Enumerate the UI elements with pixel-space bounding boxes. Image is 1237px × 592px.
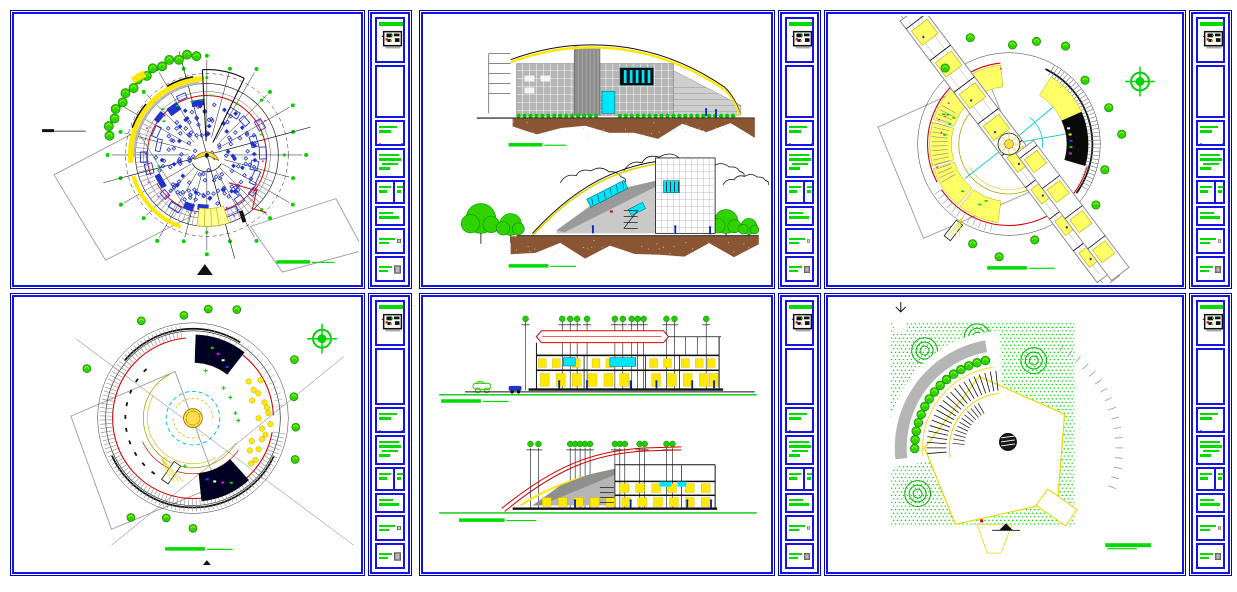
rect-glyph [604, 373, 613, 386]
drawing-label-bar [459, 518, 505, 521]
illegible-text-bar [1200, 503, 1220, 506]
hatch-tick [106, 449, 117, 453]
titleblock-notes-box [785, 435, 814, 465]
tree-symbol [995, 253, 1003, 261]
tree-symbol [158, 62, 167, 71]
stamp-text [1200, 236, 1216, 247]
hatch-tick [1088, 132, 1100, 134]
seat-marker [230, 189, 234, 193]
illegible-text-bar [789, 499, 803, 502]
tree-symbol [204, 305, 212, 313]
notes2-text [789, 499, 810, 506]
hatch-tick [264, 370, 271, 374]
rect-glyph [603, 129, 604, 130]
illegible-text-bar [789, 126, 807, 129]
hatch-tick [182, 209, 187, 222]
seat-marker [178, 125, 182, 129]
titleblock-sheet-number-box [785, 467, 814, 491]
tree-symbol [1061, 42, 1069, 50]
rect-glyph [217, 353, 220, 355]
stamp-text [1200, 523, 1216, 534]
sheet-4-drawing-area[interactable] [10, 293, 365, 576]
hatch-tick [271, 443, 282, 447]
illegible-text-bar [379, 216, 399, 219]
hatch-tick [1084, 113, 1095, 117]
rect-glyph [588, 373, 597, 386]
magenta-dot [164, 115, 166, 117]
sheet-6-drawing-area[interactable] [824, 293, 1186, 576]
magenta-dot [264, 120, 266, 122]
seat-marker [203, 178, 207, 182]
north-symbol-icon [1218, 235, 1221, 247]
tree-symbol [920, 402, 929, 411]
tree-symbol [165, 55, 174, 64]
rect-glyph [615, 495, 715, 496]
grid-bubble [205, 54, 209, 58]
grid-bubble [119, 130, 123, 134]
project-title-bar [379, 22, 405, 26]
illegible-text-bar [789, 477, 797, 480]
cad-sheet-layout [0, 0, 1237, 592]
rect-glyph [126, 402, 129, 406]
hatch-tick [100, 423, 112, 424]
seat-marker [167, 148, 171, 152]
ring-room-sector [930, 122, 954, 166]
hatch-tick [1113, 427, 1121, 428]
shrub [695, 114, 699, 118]
seal-text [379, 264, 392, 275]
rect-glyph [528, 246, 529, 247]
rect-glyph [641, 246, 642, 247]
room-fill [681, 359, 689, 368]
rect-glyph [591, 247, 592, 248]
rect-glyph [643, 134, 644, 135]
scale-notes [379, 126, 401, 133]
terrace-planter [264, 405, 270, 411]
seat-marker [172, 162, 176, 166]
circle-glyph [260, 99, 263, 102]
rect-glyph [610, 211, 613, 213]
rect-glyph [587, 248, 588, 249]
sheet-5-drawing-area[interactable] [419, 293, 775, 576]
drawing-label-bar [207, 549, 233, 550]
seat-marker [207, 124, 211, 128]
rect-glyph [624, 70, 627, 83]
hatch-tick [984, 222, 986, 230]
hatch-tick [1086, 120, 1098, 123]
illegible-text-bar [379, 212, 393, 215]
floor-slab [536, 369, 719, 371]
titleblock-seal-box [375, 256, 405, 282]
illegible-text-bar [789, 186, 801, 189]
rect-glyph [622, 498, 631, 507]
drawing-label-bar [550, 266, 576, 267]
hatch-tick [160, 331, 164, 342]
circular-roof-plan[interactable] [16, 299, 359, 570]
seat-marker [197, 123, 201, 127]
titleblock-stack [785, 17, 814, 282]
tree-symbol [1118, 130, 1126, 138]
rect-glyph [743, 133, 744, 134]
rect-glyph [125, 428, 127, 432]
line-glyph [213, 78, 244, 142]
hatch-tick [1085, 117, 1096, 121]
rect-glyph [540, 76, 550, 82]
rect-glyph [583, 247, 584, 248]
rect-glyph [226, 366, 229, 368]
building-elevations[interactable] [425, 16, 769, 283]
hatch-tick [108, 452, 119, 457]
shrub [570, 114, 574, 118]
tree-symbol [291, 455, 299, 463]
illegible-text-bar [1200, 454, 1211, 457]
circle-glyph [944, 115, 946, 117]
illegible-text-bar [379, 266, 392, 269]
rect-glyph [525, 87, 535, 93]
shrub [576, 114, 580, 118]
hatch-tick [141, 176, 154, 181]
room-fill [592, 359, 600, 368]
tree-symbol [1008, 41, 1016, 49]
grid-spoke [216, 72, 255, 139]
rect-glyph [985, 200, 988, 202]
ring-room [259, 147, 266, 159]
titleblock-notes2-box [1196, 206, 1225, 226]
notes2-text [379, 499, 401, 506]
car-blue [509, 386, 522, 391]
column-top [703, 316, 709, 322]
seat-marker [232, 164, 236, 168]
rect-glyph [701, 498, 710, 507]
rect-glyph [260, 134, 263, 136]
illegible-text-bar [789, 242, 799, 245]
room-fill [664, 359, 672, 368]
circular-floor-plan-level-1[interactable] [16, 16, 359, 283]
earth-hatch [513, 118, 755, 139]
illegible-text-bar [807, 477, 811, 480]
rect-glyph [652, 484, 661, 493]
notes-text [789, 441, 810, 457]
column-top [620, 316, 626, 322]
circle-glyph [1000, 68, 1002, 70]
rect-glyph [642, 70, 645, 83]
titleblock-empty-panel [785, 65, 814, 118]
sheet-name-cell [1198, 469, 1216, 489]
hatch-tick [104, 391, 115, 394]
rect-glyph [728, 242, 729, 243]
titleblock-notes2-box [1196, 493, 1225, 513]
illegible-text-bar [1200, 441, 1220, 444]
rect-glyph [709, 247, 710, 248]
hatch-tick [939, 194, 945, 199]
sheet-1-drawing-area[interactable] [10, 10, 365, 289]
sheet-number-cell [395, 469, 405, 489]
illegible-text-bar [379, 477, 387, 480]
seat-marker [223, 108, 227, 112]
tree-cluster [1021, 348, 1047, 374]
circle-glyph [592, 225, 594, 227]
shrub [701, 114, 705, 118]
person-figure [630, 382, 632, 388]
hatch-tick [1088, 151, 1100, 152]
rect-glyph [606, 498, 615, 507]
scale-notes [1200, 413, 1221, 420]
illegible-text-bar [379, 167, 390, 170]
seal-swatch [394, 262, 401, 277]
grid-bubble [291, 176, 295, 180]
hatch-tick [1089, 371, 1095, 376]
illegible-text-bar [1218, 186, 1225, 189]
rect-glyph [685, 242, 686, 243]
hatch-tick [167, 496, 170, 508]
rect-glyph [667, 373, 676, 386]
rect-glyph [239, 210, 246, 223]
tree-symbol [1032, 37, 1040, 45]
rect-glyph [636, 484, 645, 493]
seat-marker [226, 120, 230, 124]
rect-glyph [1069, 140, 1072, 142]
sheet-name-cell [1198, 182, 1216, 202]
hatch-tick [1111, 417, 1119, 419]
rect-glyph [602, 132, 603, 133]
titleblock-seal-box [375, 543, 405, 569]
seat-marker [167, 134, 171, 138]
glass-door [602, 91, 615, 113]
shrub [534, 114, 538, 118]
person-figure [574, 502, 576, 508]
terrace-planter [249, 438, 255, 444]
illegible-text-bar [789, 473, 801, 476]
shrub [725, 114, 729, 118]
circle-glyph [709, 226, 711, 228]
titleblock-stack [375, 17, 405, 282]
rect-glyph [200, 99, 203, 101]
hatch-tick [268, 450, 279, 455]
seat-marker [246, 149, 250, 153]
terrace-planter [268, 421, 274, 427]
shrub [636, 114, 640, 118]
seal-text [1200, 264, 1213, 275]
circle-glyph [558, 380, 560, 382]
sheet-name-cell [787, 182, 805, 202]
key-plan-thumbnail [789, 28, 814, 54]
illegible-text-bar [789, 454, 800, 457]
terrace-planter [259, 436, 265, 442]
titleblock-sheet-number-box [375, 467, 405, 491]
illegible-text-bar [379, 441, 399, 444]
hatch-tick [973, 218, 976, 225]
person-figure [630, 502, 632, 508]
terrace-planter [246, 379, 252, 385]
illegible-text-bar [789, 266, 802, 269]
graphic-scale-bar [1200, 429, 1224, 433]
tree-symbol [111, 104, 120, 113]
tree-symbol [966, 34, 974, 42]
notes-text [789, 154, 810, 170]
circle-glyph [642, 441, 648, 447]
rect-glyph [221, 482, 224, 484]
shrub [689, 114, 693, 118]
seat-marker [239, 180, 243, 184]
pool [610, 358, 636, 367]
person-figure [713, 382, 715, 388]
seal-text [789, 264, 802, 275]
circular-floor-plan-level-2[interactable] [830, 16, 1180, 283]
terrace-planter [266, 410, 272, 416]
seat-marker [234, 131, 238, 135]
illegible-text-bar [1200, 242, 1210, 245]
hatch-tick [163, 330, 167, 341]
circle-glyph [664, 441, 670, 447]
sheet-3-drawing-area[interactable] [824, 10, 1186, 289]
rect-glyph [516, 249, 517, 250]
sheet-2-drawing-area[interactable] [419, 10, 775, 289]
titleblock-empty-panel [375, 65, 405, 118]
titleblock-sheet-number-box [1196, 180, 1225, 204]
circle-glyph [710, 499, 712, 501]
graphic-scale-bar [379, 142, 403, 146]
building-sections[interactable] [425, 299, 769, 570]
site-axis [112, 357, 344, 546]
titleblock-sheet-number-box [375, 180, 405, 204]
titleblock-scale-box [785, 407, 814, 433]
rect-glyph [602, 247, 603, 248]
circle-glyph [512, 223, 524, 235]
hatch-tick [269, 446, 280, 450]
drawing-label-bar [1107, 548, 1137, 549]
key-plan-thumbnail [789, 311, 814, 337]
rect-glyph [533, 132, 534, 133]
notes2-text [379, 212, 401, 219]
illegible-text-bar [379, 158, 401, 161]
shrub [671, 114, 675, 118]
ring-room [167, 103, 181, 116]
graphic-scale-bar [789, 142, 813, 146]
illegible-text-bar [379, 445, 401, 448]
seat-marker [166, 126, 170, 130]
terrace-planter [256, 416, 262, 422]
illegible-text-bar [382, 163, 398, 166]
seat-marker [230, 169, 234, 173]
rect-glyph [128, 440, 131, 444]
seat-marker [238, 136, 242, 140]
seat-marker [183, 109, 187, 113]
person-figure [558, 382, 560, 388]
titleblock-notes2-box [785, 493, 814, 513]
scale-notes [789, 126, 810, 133]
circle-glyph [936, 166, 938, 168]
circle-glyph [1005, 140, 1014, 149]
hatch-tick [947, 203, 952, 209]
shrub [624, 114, 628, 118]
terrace-planter [259, 426, 265, 432]
hatch-tick [1088, 136, 1100, 137]
shrub [630, 114, 634, 118]
hatch-tick [952, 206, 957, 212]
rect-glyph [630, 70, 633, 83]
room-fill [538, 359, 546, 368]
rect-glyph [142, 462, 146, 466]
rect-glyph [669, 498, 678, 507]
illegible-text-bar [789, 216, 809, 219]
seat-marker [180, 153, 184, 157]
hatch-tick [108, 379, 119, 384]
seat-marker [168, 165, 172, 169]
tree-symbol [121, 89, 130, 98]
shrub [552, 114, 556, 118]
rect-glyph [593, 240, 594, 241]
rect-glyph [638, 498, 647, 507]
rect-glyph [651, 133, 652, 134]
ring-room [155, 174, 166, 188]
illegible-text-bar [1200, 238, 1216, 241]
titleblock-stamp-box [785, 228, 814, 254]
rect-glyph [151, 471, 155, 475]
rect-glyph [129, 390, 132, 394]
hatch-tick [271, 387, 279, 390]
titleblock-stamp-box [1196, 515, 1225, 541]
circle-glyph [669, 441, 675, 447]
circle-glyph [738, 224, 748, 234]
stair-fan [197, 206, 229, 226]
site-plan[interactable] [830, 299, 1180, 570]
person-figure [709, 228, 711, 234]
illegible-text-bar [789, 212, 803, 215]
tree-symbol [941, 64, 949, 72]
person-figure [691, 382, 693, 388]
rect-glyph [683, 373, 692, 386]
rect-glyph [720, 131, 721, 132]
seal-swatch [804, 549, 810, 564]
illegible-text-bar [1200, 413, 1218, 416]
shrub [653, 114, 657, 118]
rect-glyph [542, 498, 551, 507]
seat-marker [226, 150, 230, 154]
illegible-text-bar [1203, 450, 1219, 453]
hatch-tick [104, 442, 115, 445]
titleblock-scale-box [375, 407, 405, 433]
circle-glyph [938, 119, 940, 121]
tree-symbol [104, 122, 113, 131]
rect-glyph [669, 253, 670, 254]
seat-marker [191, 155, 195, 159]
shrub [707, 114, 711, 118]
rect-glyph [733, 251, 734, 252]
circle-glyph [283, 153, 286, 156]
titleblock-empty-panel [1196, 65, 1225, 118]
hatch-tick [244, 346, 249, 352]
rect-glyph [664, 181, 680, 193]
seat-marker [158, 169, 162, 173]
hatch-tick [943, 199, 949, 204]
rect-glyph [209, 95, 212, 97]
hatch-tick [962, 213, 966, 220]
hatch-tick [1060, 345, 1064, 352]
hatch-tick [990, 224, 992, 232]
titleblock-notes2-box [375, 493, 405, 513]
shrub [564, 114, 568, 118]
magenta-dot [258, 120, 260, 122]
illegible-text-bar [397, 477, 401, 480]
titleblock-stack [1196, 300, 1225, 569]
circle-glyph [629, 380, 631, 382]
column-top [574, 316, 580, 322]
drawing-label-bar [165, 547, 205, 550]
person-figure [592, 227, 594, 233]
ring-room [183, 202, 194, 211]
north-symbol-icon [807, 522, 810, 534]
person-figure [586, 382, 588, 388]
